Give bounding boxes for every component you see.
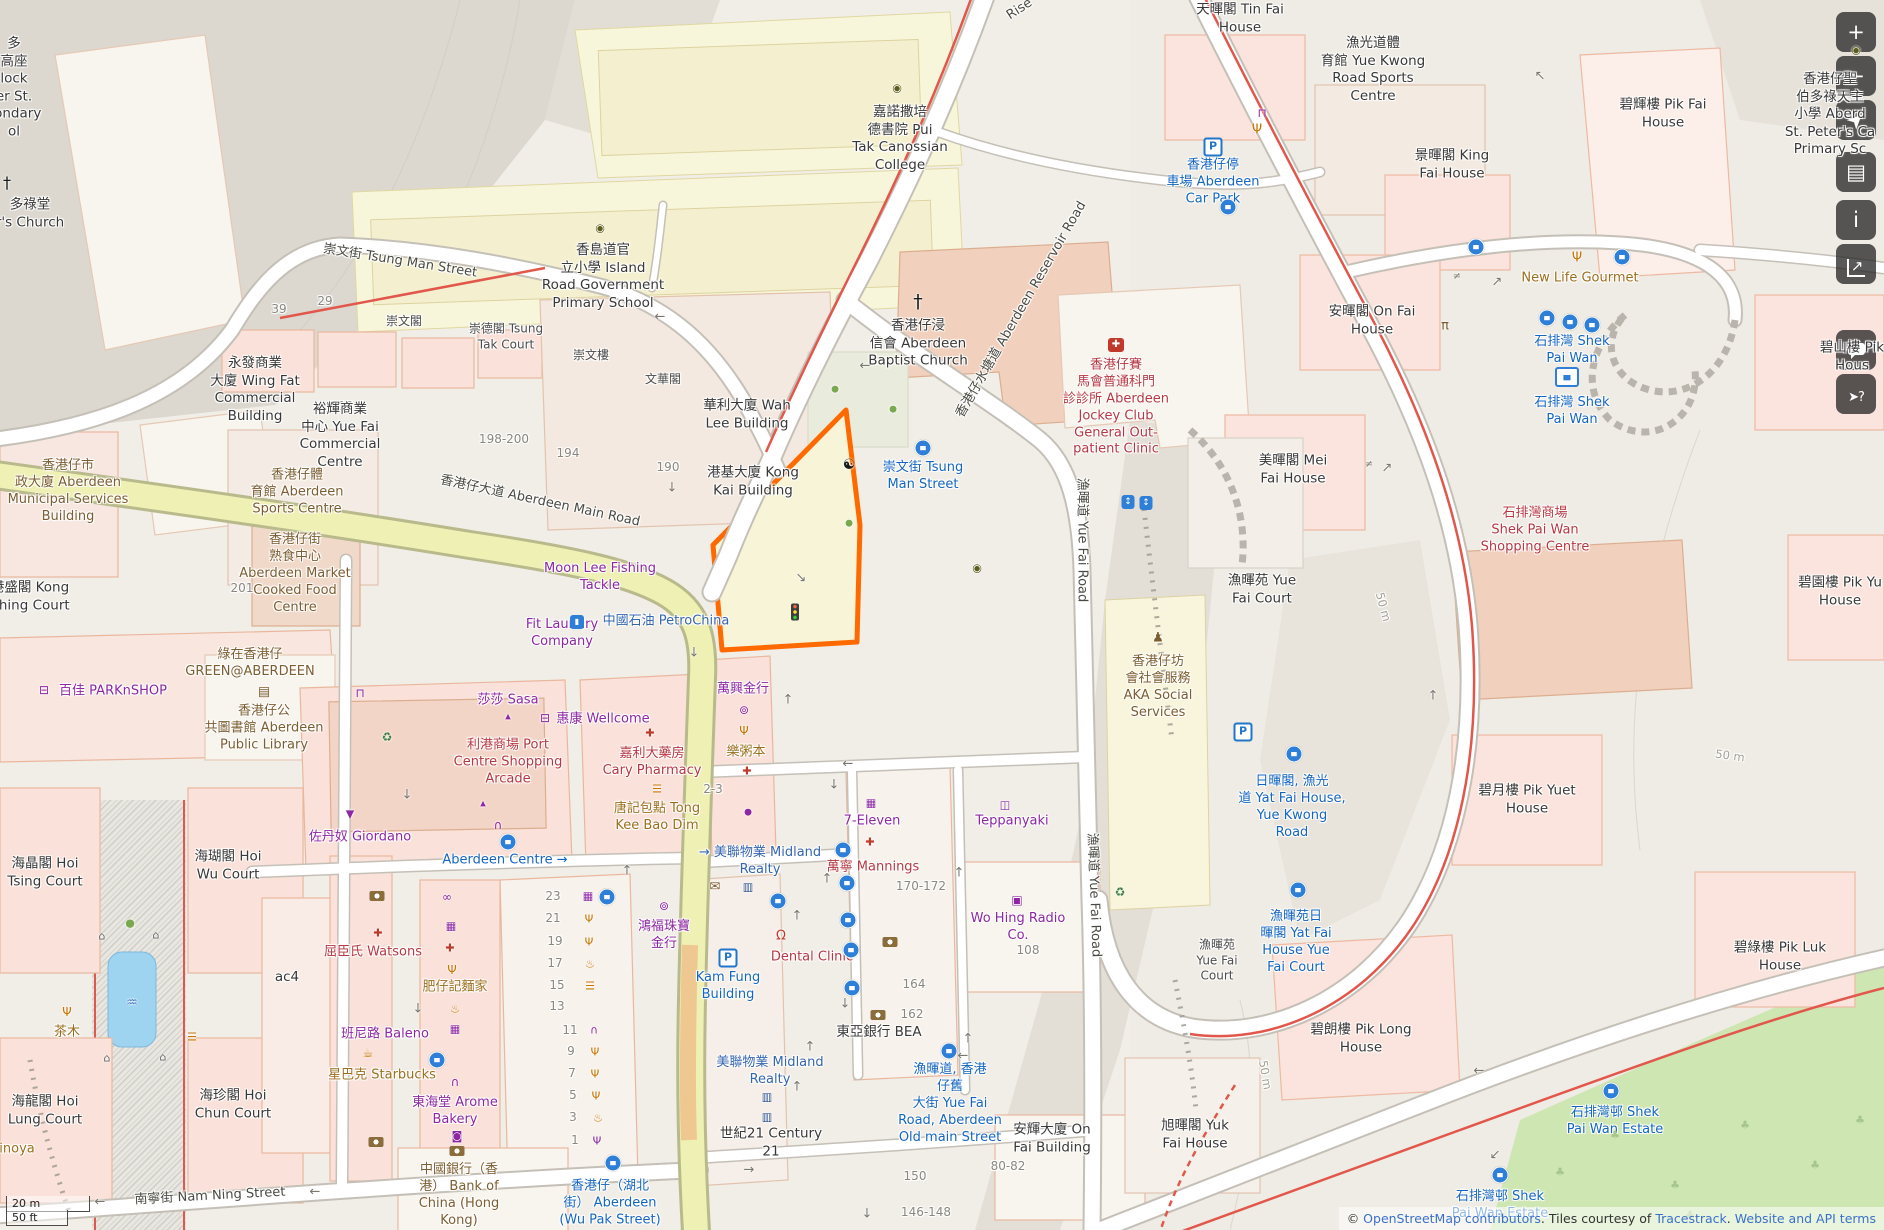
- attribution-sep: .: [1727, 1211, 1735, 1226]
- layers-button[interactable]: ▤: [1836, 152, 1876, 192]
- attribution: © OpenStreetMap contributors. Tiles cour…: [1339, 1207, 1884, 1230]
- map-viewport[interactable]: +−➤▤i↗➤? 多 高座 lock er St. condary ol多祿堂 …: [0, 0, 1884, 1230]
- attribution-copyright: ©: [1347, 1211, 1363, 1226]
- map-canvas[interactable]: [0, 0, 1884, 1230]
- zoom-out-button[interactable]: −: [1836, 56, 1876, 96]
- query-features-button[interactable]: ➤?: [1836, 374, 1876, 414]
- share-button[interactable]: ↗: [1836, 244, 1876, 284]
- attribution-middle: . Tiles courtesy of: [1541, 1211, 1655, 1226]
- tracestrack-link[interactable]: Tracestrack: [1655, 1211, 1726, 1226]
- osm-contributors-link[interactable]: OpenStreetMap contributors: [1363, 1211, 1541, 1226]
- terms-link[interactable]: Website and API terms: [1735, 1211, 1876, 1226]
- zoom-in-button[interactable]: +: [1836, 12, 1876, 52]
- scale-imperial: 50 ft: [6, 1210, 68, 1226]
- add-note-button[interactable]: [1836, 330, 1876, 370]
- locate-button[interactable]: ➤: [1836, 100, 1876, 140]
- scale-bar: 20 m 50 ft: [6, 1196, 90, 1227]
- info-button[interactable]: i: [1836, 200, 1876, 240]
